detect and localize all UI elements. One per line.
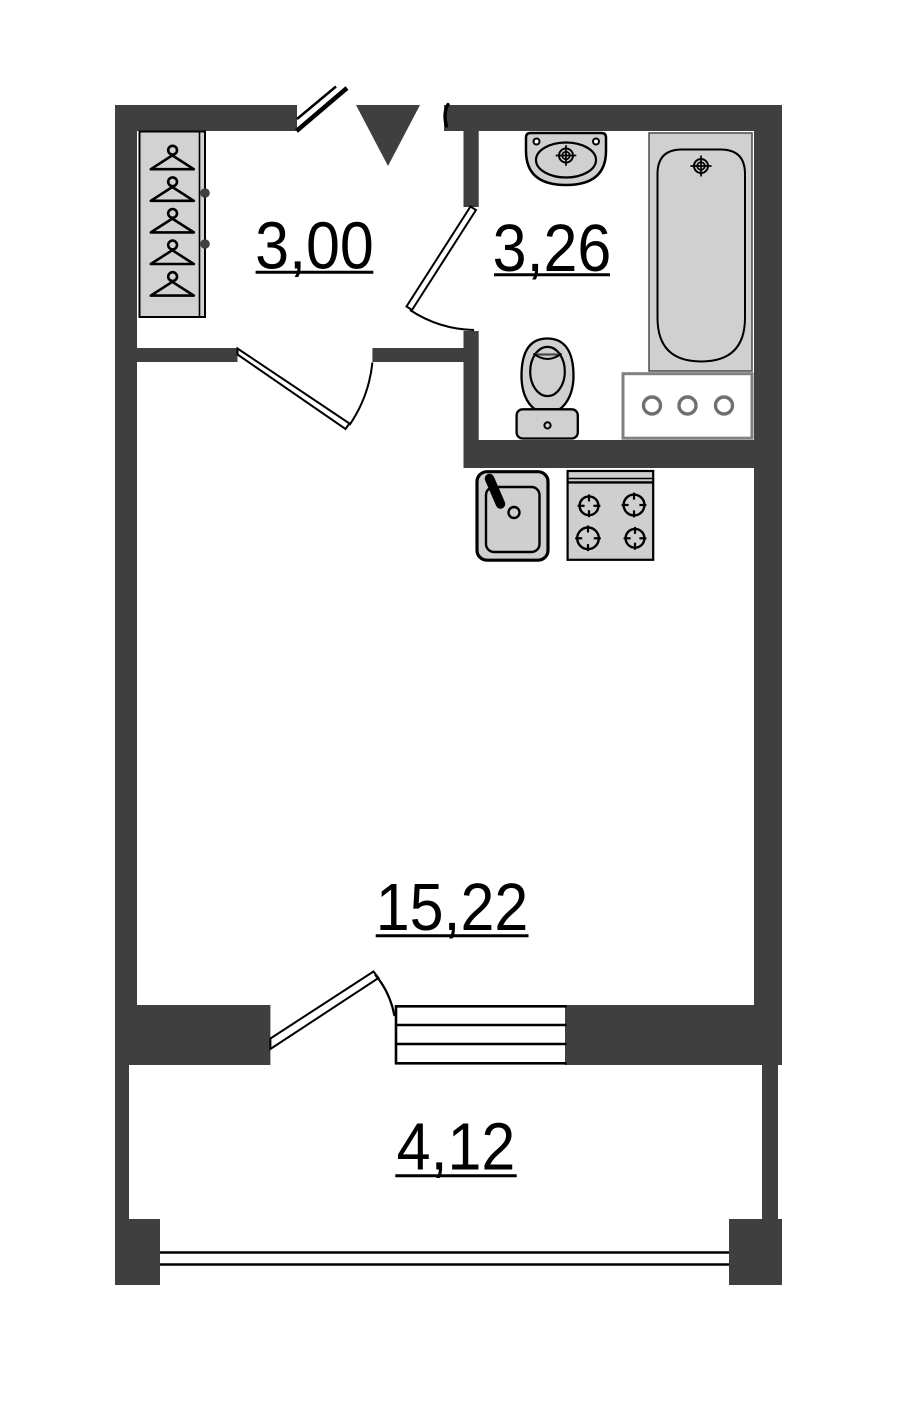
svg-text:4,12: 4,12: [397, 1109, 516, 1184]
svg-text:15,22: 15,22: [376, 869, 529, 944]
